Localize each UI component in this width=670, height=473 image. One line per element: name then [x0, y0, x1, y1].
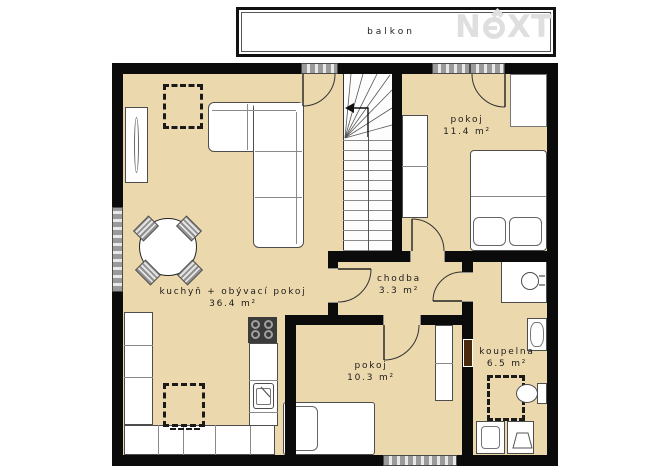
sofa-backrest-line	[212, 110, 296, 111]
kitchen-sink-basin	[256, 388, 271, 405]
window-left	[112, 207, 123, 292]
room-name: kuchyň + obývací pokoj	[160, 287, 307, 299]
bath-left-wall	[462, 251, 473, 272]
counter-division	[249, 412, 278, 413]
stair-right-wall	[392, 63, 402, 262]
room-area: 11.4 m²	[443, 127, 491, 139]
pillow	[509, 217, 542, 246]
outer-wall-left	[112, 63, 123, 207]
room-label-bedroom-bottom: pokoj 10.3 m²	[347, 361, 395, 384]
balcony-door-opening-living	[301, 63, 338, 74]
counter-division	[249, 380, 278, 381]
door-opening-hall-bedroom-top	[410, 251, 445, 262]
logo-text-post: XT	[507, 12, 552, 43]
room-area: 36.4 m²	[160, 299, 307, 311]
door-opening-hall-bedroom-bottom	[383, 315, 421, 325]
sofa-backrest-line	[296, 112, 297, 244]
outer-wall-bottom	[112, 455, 383, 466]
logo-e-bar	[488, 26, 497, 30]
tv-screen	[134, 117, 139, 173]
wardrobe-division	[435, 363, 453, 364]
room-area: 10.3 m²	[347, 373, 395, 385]
hall-bottom-wall	[421, 315, 473, 325]
stove-burner	[251, 320, 260, 329]
balcony-label: balkon	[367, 27, 415, 37]
window-bottom	[383, 455, 457, 466]
outer-wall-left	[112, 292, 123, 466]
counter-division	[158, 425, 159, 455]
outer-wall-top	[112, 63, 301, 74]
wall-washbasin-bowl	[530, 322, 544, 347]
kitchen-counter-left	[124, 312, 153, 425]
room-area: 3.3 m²	[377, 286, 421, 298]
wardrobe-division	[402, 166, 428, 167]
laundry-basket	[507, 421, 534, 454]
kitchen-bedroom-wall	[285, 325, 296, 455]
outer-wall-top	[338, 63, 432, 74]
room-name: pokoj	[443, 115, 491, 127]
counter-division	[124, 345, 153, 346]
logo-circled-e-icon	[483, 17, 505, 39]
counter-division	[215, 425, 216, 455]
hall-bottom-wall	[285, 315, 383, 325]
sofa-cushion-line	[255, 151, 302, 152]
outer-wall-bottom	[457, 455, 558, 466]
counter-division	[124, 377, 153, 378]
closet-niche	[510, 74, 547, 127]
room-label-living: kuchyň + obývací pokoj 36.4 m²	[160, 287, 307, 310]
door-opening-living-hall	[328, 268, 338, 303]
rug-dashed-top	[163, 84, 203, 129]
room-name: chodba	[377, 274, 421, 286]
rug-dashed-extra	[170, 428, 200, 431]
washbasin-round	[521, 272, 539, 290]
room-name: pokoj	[347, 361, 395, 373]
room-area: 6.5 m²	[479, 359, 534, 371]
hall-left-wall	[328, 251, 338, 268]
rug-dashed-kitchen	[163, 383, 205, 427]
washing-machine-drum	[481, 426, 500, 449]
toilet-tank	[537, 383, 547, 404]
mid-wall-horizontal	[445, 251, 547, 262]
bed-blanket-line	[471, 196, 546, 197]
toilet-bowl	[516, 384, 538, 403]
room-label-bedroom-top: pokoj 11.4 m²	[443, 115, 491, 138]
sofa-cushion-line	[255, 197, 302, 198]
counter-division	[250, 425, 251, 455]
stove-burner	[264, 320, 273, 329]
pillow	[473, 217, 506, 246]
window-top	[432, 63, 470, 74]
next-logo: N XT	[455, 12, 552, 43]
door-opening-hall-bathroom	[462, 272, 473, 302]
balcony-door-opening-bedroom	[470, 63, 505, 74]
room-label-hallway: chodba 3.3 m²	[377, 274, 421, 297]
mid-wall-horizontal	[333, 251, 410, 262]
outer-wall-right	[547, 63, 558, 466]
logo-text-pre: N	[455, 12, 481, 43]
stair-center-line	[368, 137, 369, 251]
radiator	[463, 339, 473, 367]
room-label-bathroom: koupelna 6.5 m²	[479, 347, 534, 370]
stove-burner	[264, 330, 273, 339]
stove-burner	[251, 330, 260, 339]
room-name: koupelna	[479, 347, 534, 359]
floor-plan: kuchyň + obývací pokoj 36.4 m² pokoj 11.…	[0, 0, 670, 473]
